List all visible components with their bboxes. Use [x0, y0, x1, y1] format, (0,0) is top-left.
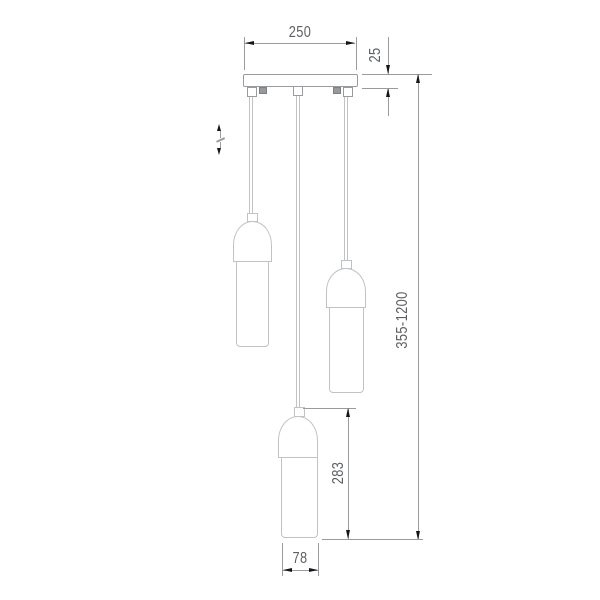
dim25-extension-top [362, 74, 432, 75]
lamp2-dome-shade [326, 268, 366, 308]
arrow-up-icon [416, 74, 420, 83]
lamp1-dome-shade [233, 221, 272, 262]
arrow-up-icon [346, 408, 350, 417]
suspension-wire-right [344, 97, 348, 261]
dim78-extension-right [318, 543, 319, 576]
dim250-dimension-line [245, 43, 355, 44]
arrow-down-icon [217, 148, 221, 155]
canopy-socket-left [247, 87, 257, 97]
canopy-screw-left [259, 87, 267, 94]
dim355-dimension-line [418, 74, 419, 540]
arrow-up-icon [217, 124, 221, 131]
dim-overall-height-label: 355-1200 [395, 287, 411, 353]
arrow-right-icon [346, 41, 355, 45]
lamp1-cylinder-diffuser [236, 261, 269, 347]
dim283-dimension-line [348, 408, 349, 540]
arrow-left-icon [283, 568, 292, 572]
adjust-tail-top [220, 131, 221, 138]
canopy-socket-middle [293, 86, 303, 96]
arrow-down-icon [346, 530, 350, 539]
dim250-extension-right [356, 37, 357, 70]
dim-shade-width-label: 78 [284, 551, 316, 567]
dim-canopy-width-label: 250 [276, 25, 324, 41]
dim-shade-height-label: 283 [331, 442, 347, 504]
lamp2-cylinder-diffuser [329, 307, 364, 393]
lamp3-cylinder-diffuser [281, 457, 318, 538]
technical-drawing-canvas: 250 25 355-1200 283 78 [0, 0, 600, 600]
canopy-socket-right [343, 87, 353, 97]
dim-canopy-height-label: 25 [368, 39, 384, 71]
arrow-right-icon [309, 568, 318, 572]
lamp3-dome-shade [278, 416, 318, 458]
arrow-down-icon [386, 65, 390, 74]
suspension-wire-left [249, 97, 253, 214]
arrow-up-icon [386, 88, 390, 97]
suspension-wire-middle [296, 96, 300, 409]
canopy-screw-right [333, 87, 341, 94]
arrow-left-icon [245, 41, 254, 45]
bottom-extension-line [322, 539, 423, 540]
dim25-extension-bottom [362, 88, 398, 89]
